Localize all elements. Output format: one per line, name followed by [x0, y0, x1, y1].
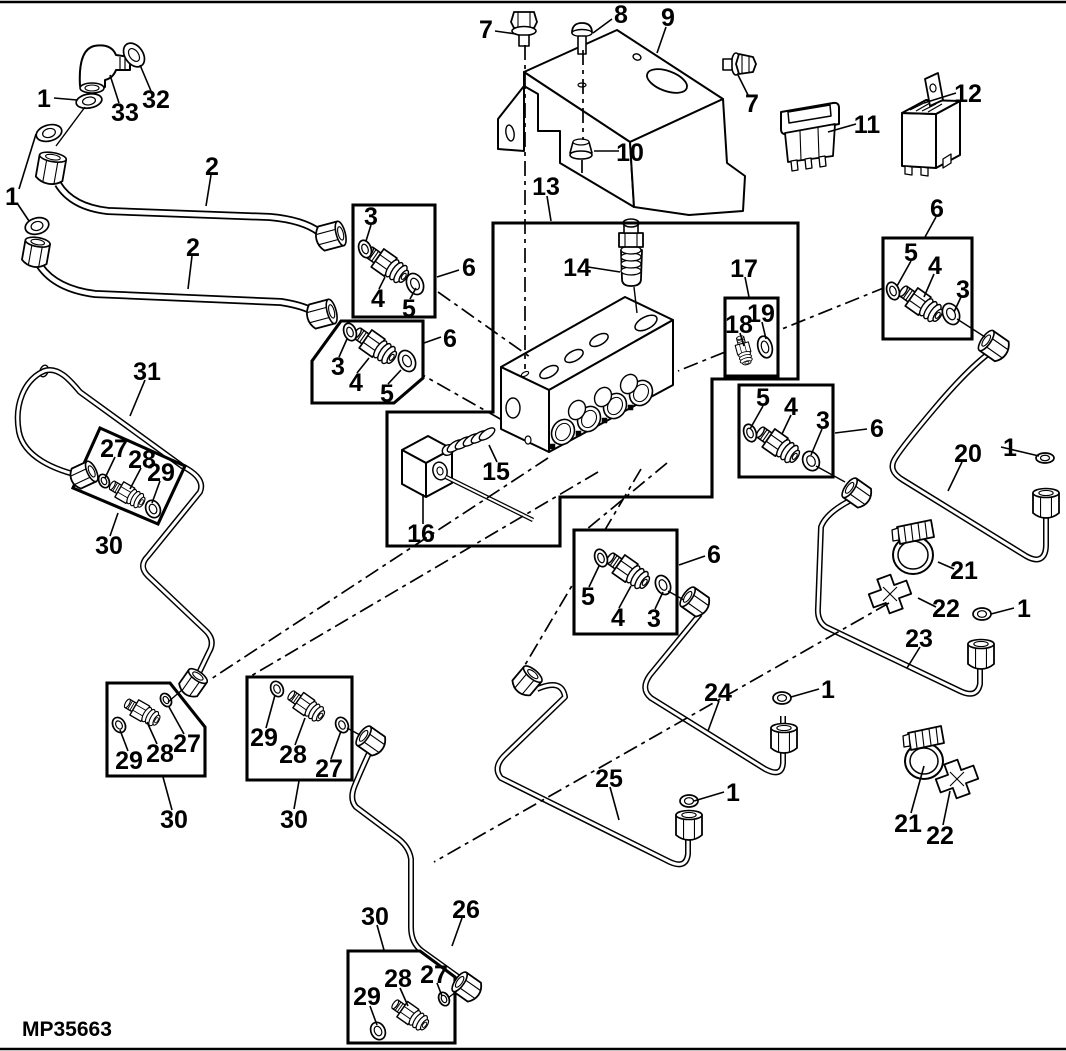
bolt-7-right-head	[736, 54, 756, 74]
leader-line	[791, 689, 819, 697]
callout-label-13: 13	[532, 173, 560, 201]
callout-label-4: 4	[784, 393, 798, 421]
o-ring-bore	[778, 695, 787, 702]
tube-25-core	[497, 685, 688, 864]
callout-label-2: 2	[186, 234, 200, 262]
callout-label-3: 3	[364, 203, 378, 231]
callout-label-4: 4	[611, 604, 625, 632]
callout-label-28: 28	[279, 741, 307, 769]
callout-label-6: 6	[707, 541, 721, 569]
callout-label-31: 31	[133, 358, 161, 386]
hose-2-upper-core	[58, 184, 319, 232]
flare-nut	[771, 724, 797, 754]
callout-label-26: 26	[452, 896, 480, 924]
flare-nut	[509, 663, 544, 699]
parts-diagram-page: MP35663 78971013111213332122345634561417…	[0, 0, 1066, 1051]
leader-line	[593, 19, 612, 33]
callout-label-7: 7	[479, 16, 493, 44]
alignment-dash-line	[434, 603, 889, 862]
callout-label-5: 5	[581, 583, 595, 611]
clamp-21-lower-housing	[908, 726, 944, 750]
bolt-8-shank	[578, 36, 586, 54]
callout-label-6: 6	[443, 325, 457, 353]
callout-label-7: 7	[745, 90, 759, 118]
part-shape	[805, 158, 812, 169]
callout-label-25: 25	[595, 765, 623, 793]
leader-line	[54, 98, 77, 100]
callout-label-1: 1	[726, 779, 740, 807]
part-shape	[892, 528, 899, 541]
callout-label-8: 8	[614, 1, 628, 29]
alignment-dash-line	[251, 472, 598, 676]
callout-label-1: 1	[5, 183, 19, 211]
callout-label-14: 14	[563, 254, 591, 282]
leader-line	[424, 337, 441, 343]
part-shape	[602, 418, 607, 423]
callout-label-33: 33	[111, 99, 139, 127]
leader-line	[943, 791, 950, 825]
flare-nut	[676, 811, 702, 841]
callout-label-32: 32	[142, 86, 170, 114]
part-shape	[550, 444, 555, 449]
callout-label-1: 1	[1017, 595, 1031, 623]
leader-line	[679, 556, 705, 565]
flare-nut	[67, 460, 100, 491]
flare-nut	[304, 298, 339, 330]
callout-label-29: 29	[250, 724, 278, 752]
valve-14-hex	[619, 233, 643, 247]
bolt-7-left-head	[511, 12, 537, 28]
callout-label-30: 30	[280, 806, 308, 834]
callout-label-1: 1	[37, 85, 51, 113]
callout-label-23: 23	[905, 625, 933, 653]
alignment-dash-line	[678, 287, 886, 371]
callout-label-3: 3	[956, 276, 970, 304]
part-detail	[525, 436, 531, 444]
clamp-21-upper-housing	[897, 520, 934, 544]
callout-label-12: 12	[954, 80, 982, 108]
part-detail	[777, 725, 791, 730]
callout-label-22: 22	[932, 595, 960, 623]
callout-label-5: 5	[402, 295, 416, 323]
part-detail	[477, 426, 496, 443]
flare-nut	[968, 640, 994, 670]
flare-nut	[21, 236, 51, 269]
part-shape	[819, 156, 826, 167]
part-shape	[576, 431, 581, 436]
callout-label-4: 4	[371, 285, 385, 313]
callout-label-15: 15	[482, 458, 510, 486]
part-detail	[898, 541, 928, 569]
leader-line	[835, 429, 867, 433]
relay-12-front	[902, 113, 936, 168]
callout-label-21: 21	[950, 557, 978, 585]
part-detail	[910, 748, 938, 774]
callout-label-17: 17	[730, 255, 758, 283]
callout-label-29: 29	[353, 983, 381, 1011]
callout-label-21: 21	[894, 810, 922, 838]
callout-label-5: 5	[756, 384, 770, 412]
part-detail	[974, 641, 988, 646]
callout-label-16: 16	[407, 520, 435, 548]
callout-label-24: 24	[704, 679, 732, 707]
leader-line	[694, 792, 724, 801]
callout-label-29: 29	[115, 747, 143, 775]
o-ring-bore	[978, 611, 987, 618]
tube-25	[497, 685, 688, 864]
part-shape	[903, 734, 910, 747]
part-shape	[905, 166, 912, 175]
flare-nut	[35, 150, 67, 186]
callout-label-5: 5	[380, 380, 394, 408]
callout-label-30: 30	[95, 532, 123, 560]
nut-10-flange	[570, 151, 592, 159]
part-detail	[682, 812, 696, 817]
callout-label-9: 9	[661, 4, 675, 32]
callout-label-29: 29	[147, 459, 175, 487]
callout-label-5: 5	[904, 239, 918, 267]
hose-2-lower-core	[40, 266, 315, 313]
callout-label-30: 30	[361, 903, 389, 931]
bolt-7-right-shank	[723, 59, 732, 70]
o-ring-bore	[1041, 455, 1050, 461]
callout-label-6: 6	[462, 254, 476, 282]
part-shape	[628, 405, 633, 410]
callout-label-6: 6	[870, 415, 884, 443]
callout-label-10: 10	[616, 139, 644, 167]
o-ring-bore	[685, 798, 694, 805]
callout-label-19: 19	[747, 300, 775, 328]
callout-label-1: 1	[1003, 434, 1017, 462]
flare-nut	[677, 585, 713, 620]
callout-label-30: 30	[160, 806, 188, 834]
callout-label-4: 4	[349, 369, 363, 397]
leader-line	[588, 267, 620, 272]
flare-nut	[313, 220, 348, 252]
callout-label-22: 22	[926, 822, 954, 850]
part-shape	[921, 167, 928, 176]
alignment-dash-line	[211, 458, 548, 679]
part-detail	[929, 84, 936, 93]
callout-label-27: 27	[100, 435, 128, 463]
leader-line	[437, 270, 459, 277]
callout-label-27: 27	[173, 730, 201, 758]
flare-nut	[353, 724, 389, 759]
leader-line	[19, 134, 36, 189]
callout-label-4: 4	[928, 252, 942, 280]
tube-26-core	[352, 749, 461, 979]
part-shape	[791, 160, 798, 171]
callout-label-11: 11	[854, 111, 881, 139]
callout-label-27: 27	[315, 755, 343, 783]
part-detail	[1039, 490, 1053, 495]
callout-label-2: 2	[205, 153, 219, 181]
callout-label-3: 3	[331, 353, 345, 381]
callout-label-6: 6	[930, 195, 944, 223]
part-detail	[578, 83, 586, 87]
callout-label-3: 3	[816, 407, 830, 435]
callout-label-1: 1	[821, 676, 835, 704]
callout-label-28: 28	[384, 965, 412, 993]
leader-line	[294, 781, 299, 809]
figure-code: MP35663	[22, 1018, 112, 1041]
part-detail	[506, 398, 520, 418]
tube-26	[352, 749, 461, 979]
exploded-parts-diagram: MP35663 78971013111213332122345634561417…	[0, 0, 1066, 1051]
flare-nut	[1033, 489, 1059, 519]
part-detail	[85, 85, 99, 91]
leader-line	[991, 608, 1014, 614]
callout-label-20: 20	[954, 440, 982, 468]
bolt-7-left-shank	[519, 35, 529, 46]
callout-label-3: 3	[647, 605, 661, 633]
callout-label-28: 28	[146, 740, 174, 768]
part-detail	[573, 139, 589, 145]
callout-label-27: 27	[420, 961, 448, 989]
